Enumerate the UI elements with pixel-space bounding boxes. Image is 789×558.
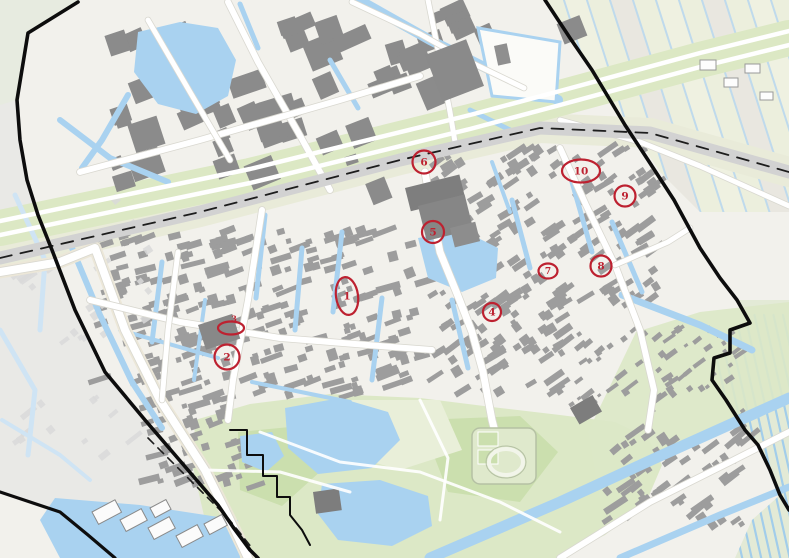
- marker-number-3: 3: [231, 314, 237, 324]
- topographic-map: 12345678910: [0, 0, 789, 558]
- marker-number-5: 5: [429, 227, 436, 239]
- map-canvas[interactable]: 12345678910: [0, 0, 789, 558]
- layer-open-field: [478, 28, 560, 102]
- marker-number-2: 2: [223, 352, 230, 364]
- marker-number-9: 9: [621, 191, 628, 203]
- marker-number-4: 4: [488, 307, 495, 319]
- marker-number-8: 8: [597, 261, 604, 273]
- marker-number-6: 6: [420, 157, 427, 169]
- marker-number-1: 1: [343, 291, 350, 303]
- marker-number-10: 10: [574, 166, 589, 178]
- marker-number-7: 7: [545, 267, 551, 277]
